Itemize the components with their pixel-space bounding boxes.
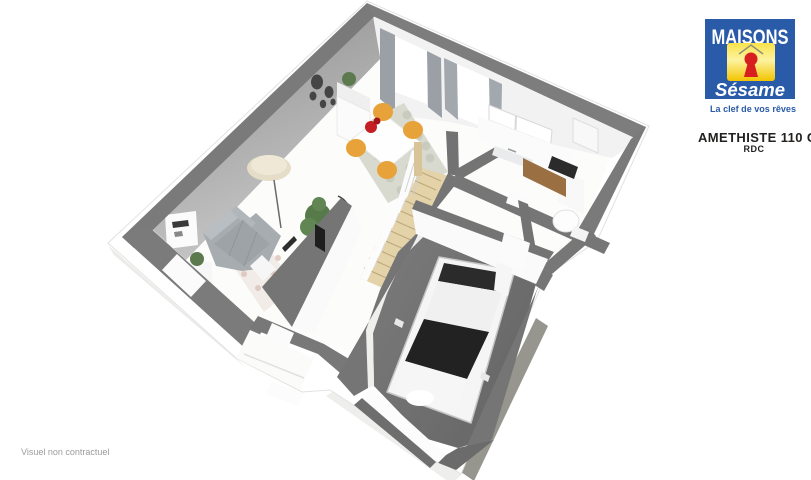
svg-text:RDC: RDC	[744, 144, 765, 154]
svg-text:La clef de vos rêves: La clef de vos rêves	[710, 104, 796, 115]
svg-text:Visuel non contractuel: Visuel non contractuel	[21, 447, 109, 457]
svg-text:Sésame: Sésame	[715, 80, 785, 100]
svg-text:AMETHISTE 110 GI: AMETHISTE 110 GI	[698, 130, 811, 145]
